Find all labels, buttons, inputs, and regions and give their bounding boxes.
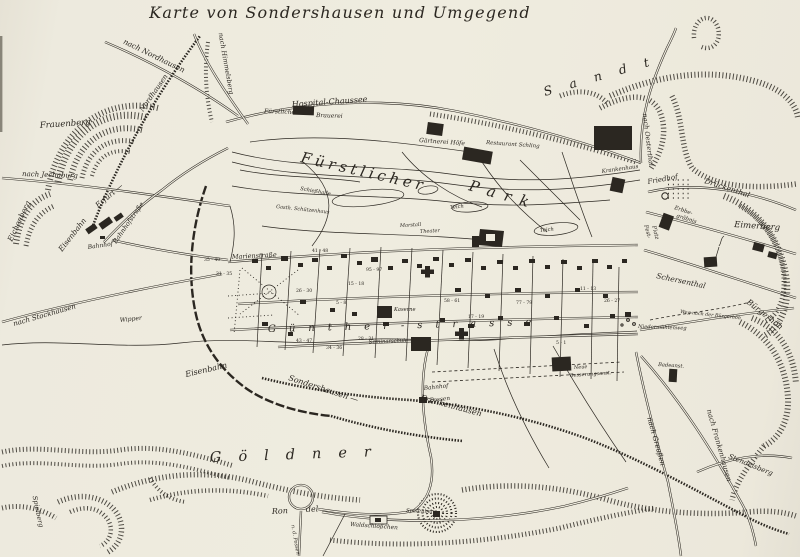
label-friedhof: Friedhof <box>646 173 680 187</box>
schloss-complex <box>472 229 504 247</box>
label-neue: Neue <box>573 364 588 371</box>
hill-top-right <box>560 18 798 187</box>
house-number: 26 - 27 <box>604 298 620 304</box>
label-marstall: Marstall <box>399 222 422 229</box>
house-number: 28 - 31 <box>358 336 374 342</box>
label-nach-oesterthal: nach Oesterthal <box>641 113 655 166</box>
label-fuerstliche: Fürstliche <box>263 108 296 116</box>
house-number: 31 - 35 <box>216 271 232 277</box>
house-number: 58 - 61 <box>444 298 460 304</box>
label-nach-himmelsberg: nach Himmelsberg <box>217 32 236 95</box>
label-sondershausen-bahn: Sondershausen — <box>287 373 359 404</box>
label-badeanstalt: Badeanst. <box>657 362 685 370</box>
kaserne-building <box>377 306 392 318</box>
label-schiesshalle: Schießhalle <box>300 186 331 197</box>
label-waldschloesschen: Waldschlößchen <box>350 522 398 531</box>
house-number: 17 - 19 <box>468 314 484 320</box>
label-seminarschule: Seminarschule <box>369 338 408 345</box>
label-teich-2: Teich <box>540 227 555 234</box>
label-teich-1: Teich <box>450 204 465 211</box>
label-rondel-2: del <box>306 504 319 514</box>
label-gaertnerei: Gärtnerei Höfe <box>419 137 466 147</box>
labels: Karte von Sondershausen und Umgegend nac… <box>5 3 784 555</box>
label-nach-nordhausen: nach Nordhausen <box>122 37 187 75</box>
roads <box>2 28 796 556</box>
label-frauenberg: Frauenberg <box>39 117 92 131</box>
label-besserungsanstalt: Besserungsanst. <box>569 370 612 379</box>
map-title: Karte von Sondershausen und Umgegend <box>148 3 531 22</box>
label-festplatz-2: Platz <box>650 224 660 240</box>
map-page: Karte von Sondershausen und Umgegend nac… <box>0 0 800 557</box>
seminarschule-building <box>411 337 431 351</box>
house-number: 5 - 8 <box>336 300 346 306</box>
label-bahnhof: Bahnhof <box>86 240 115 251</box>
label-schersenthal: Schersenthal <box>656 271 707 290</box>
label-bahnhof-possen-1: Bahnhof <box>423 383 450 392</box>
label-krankenhaus: Krankenhaus <box>600 164 639 175</box>
badeanstalt-building <box>669 369 678 382</box>
label-nach-frankenhausen: nach Frankenhausen <box>705 409 733 483</box>
label-schuetzenhaus: Gasth. Schützenhaus <box>276 204 330 216</box>
label-rondel-1: Ron <box>271 506 288 516</box>
label-bahnhofstrasse: Bahnhofstraße <box>111 201 146 246</box>
region-goeldner: Göldner <box>210 444 389 466</box>
label-spatenberg: Spatenberg <box>406 508 438 515</box>
map-canvas: Karte von Sondershausen und Umgegend nac… <box>0 0 800 557</box>
house-number: 11 - 13 <box>580 286 596 292</box>
label-nach-jechaburg: nach Jechaburg <box>22 170 78 180</box>
label-spielberg: Spielberg <box>31 495 45 528</box>
label-eisenbahn-sued: Eisenbahn <box>183 361 228 380</box>
house-number: 43 - 47 <box>296 338 312 344</box>
label-nach-stockhausen: nach Stockhausen <box>12 302 77 328</box>
bottom-ridge <box>112 475 796 544</box>
label-niedermuehlenweg: Niedermühlenweg <box>637 324 687 332</box>
besserungsanstalt-building <box>552 356 572 371</box>
label-nd-possen: n. d. Possen <box>289 524 300 555</box>
label-brauerei: Brauerei <box>315 112 343 120</box>
house-number: 26 - 30 <box>296 288 312 294</box>
label-kaserne: Kaserne <box>393 307 416 313</box>
label-festplatz-1: Fest- <box>642 223 652 239</box>
railway-erfurt-line <box>331 416 463 441</box>
house-number: 41 - 48 <box>312 248 328 254</box>
label-restaurant: Restaurant Schling <box>485 140 540 150</box>
label-wipper: Wipper <box>119 315 143 324</box>
gaertnerei-building <box>426 122 444 136</box>
house-number: 35 - 40 <box>204 257 220 263</box>
hills <box>2 18 798 552</box>
hill-bottom-left <box>58 497 122 552</box>
region-park: Park <box>466 176 540 213</box>
label-frankenhausen-bahn: Frankenhausen <box>419 393 483 418</box>
label-hospital-chaussee: Hospital-Chaussee <box>291 95 368 109</box>
house-number: 15 - 18 <box>348 281 364 287</box>
label-guentherstrasse: Günther-strasse <box>268 317 545 335</box>
label-nach-greussen: nach Greußen <box>645 416 667 467</box>
label-theater: Theater <box>420 228 441 235</box>
house-number: 5 - 1 <box>556 340 566 346</box>
house-number: 34 - 36 <box>326 345 342 351</box>
page-edge-shadow <box>0 36 2 132</box>
label-eisenbahn-west: Eisenbahn <box>56 216 88 254</box>
house-number: 95 - 97 <box>366 267 382 273</box>
region-fuerstlicher: Fürstlicher <box>298 148 428 195</box>
large-block-ne <box>594 126 632 150</box>
restaurant-building <box>462 147 493 165</box>
schersenthal-factory <box>704 236 724 267</box>
church-1 <box>421 266 434 278</box>
krankenhaus-building <box>610 177 626 193</box>
label-eimerberg: Eimerberg <box>733 220 781 233</box>
house-number: 77 - 79 <box>516 300 532 306</box>
